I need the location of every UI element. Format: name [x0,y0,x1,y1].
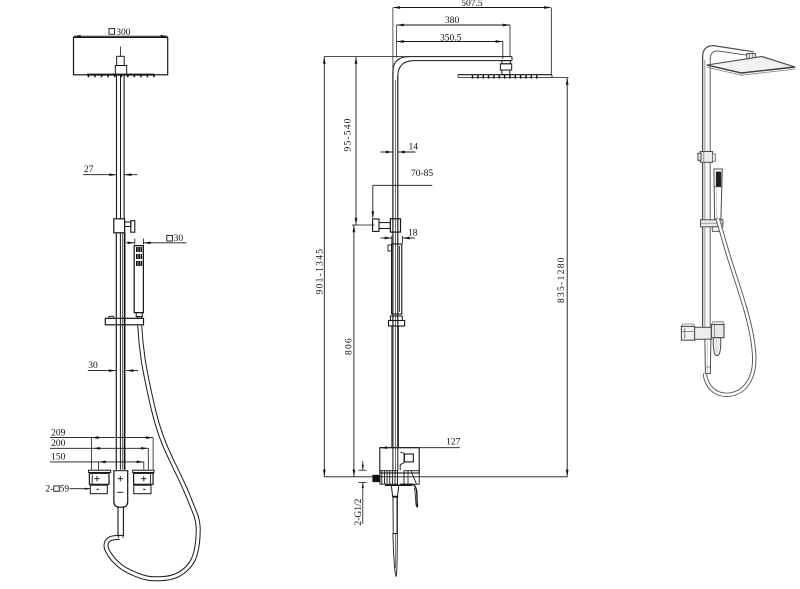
svg-text:30: 30 [88,361,98,371]
svg-text:806: 806 [344,337,354,355]
svg-text:59: 59 [60,485,70,495]
svg-text:14: 14 [409,143,419,153]
svg-text:209: 209 [51,428,66,438]
svg-text:2-: 2- [45,485,53,495]
svg-text:70-85: 70-85 [411,169,433,179]
svg-text:350.5: 350.5 [440,33,462,43]
svg-text:507.5: 507.5 [461,0,483,9]
svg-text:150: 150 [51,453,66,463]
svg-text:30: 30 [174,234,184,244]
svg-text:2-G1/2: 2-G1/2 [354,498,364,525]
svg-text:835-1280: 835-1280 [557,256,567,303]
svg-text:300: 300 [116,28,131,38]
svg-text:200: 200 [51,439,66,449]
svg-text:127: 127 [446,437,461,447]
svg-text:27: 27 [84,165,94,175]
svg-text:95-540: 95-540 [343,117,353,151]
svg-text:18: 18 [408,229,418,239]
svg-text:901-1345: 901-1345 [315,248,325,295]
svg-text:380: 380 [445,16,460,26]
